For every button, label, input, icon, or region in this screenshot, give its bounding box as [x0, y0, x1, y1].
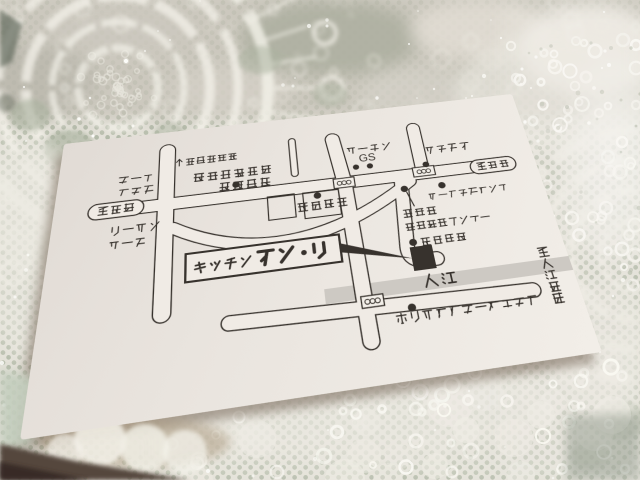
svg-text:GS: GS — [358, 153, 377, 165]
